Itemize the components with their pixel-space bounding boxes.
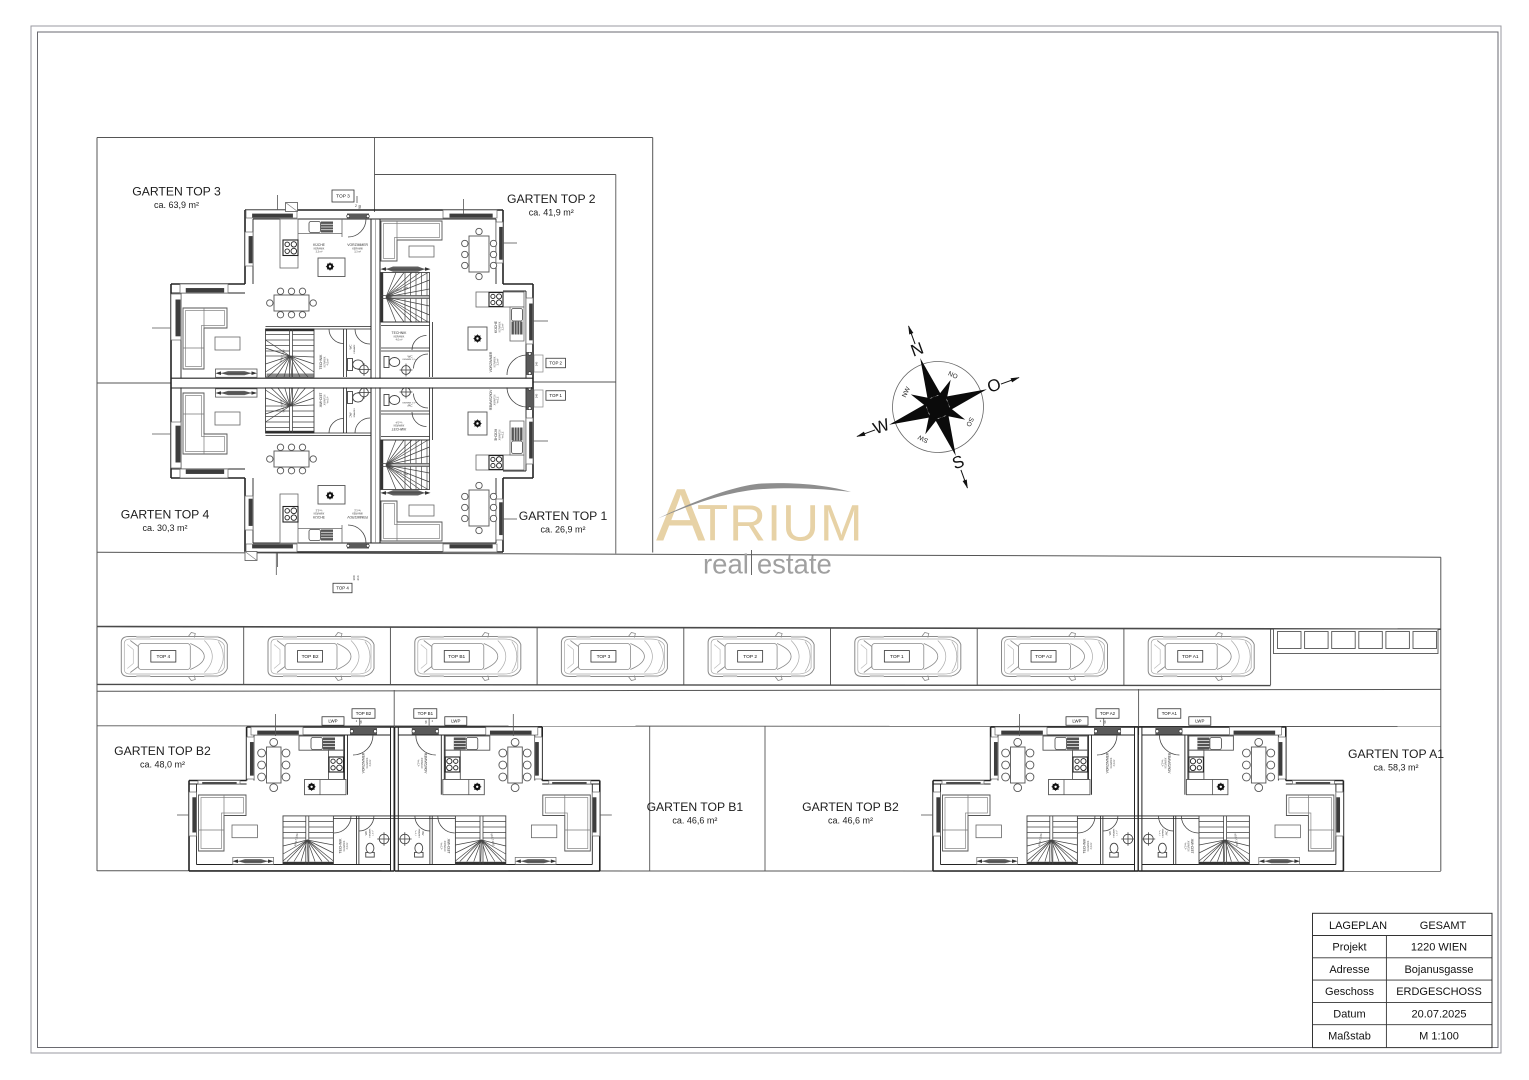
svg-text:4,0 m²: 4,0 m²: [327, 397, 330, 404]
svg-text:4,0 m²: 4,0 m²: [396, 339, 403, 342]
svg-text:ca. 46,6 m²: ca. 46,6 m²: [672, 816, 717, 826]
svg-text:TECHNIK: TECHNIK: [319, 354, 323, 370]
svg-text:3,2 m²: 3,2 m²: [502, 323, 505, 330]
svg-text:WC: WC: [364, 831, 368, 836]
svg-text:Adresse: Adresse: [1329, 964, 1369, 976]
svg-text:ca. 58,3 m²: ca. 58,3 m²: [1373, 763, 1418, 773]
svg-text:LWP: LWP: [328, 719, 337, 724]
svg-text:240: 240: [535, 361, 539, 366]
svg-text:TOP A1: TOP A1: [1182, 654, 1199, 660]
svg-text:3,2 m²: 3,2 m²: [502, 432, 505, 439]
svg-text:TECHNIK: TECHNIK: [392, 427, 408, 431]
svg-text:VORZIMMER: VORZIMMER: [423, 752, 427, 773]
svg-text:TOP A2: TOP A2: [1035, 654, 1052, 660]
svg-text:GARTEN TOP 4: GARTEN TOP 4: [121, 508, 210, 522]
svg-text:VORZIMMER: VORZIMMER: [362, 752, 366, 773]
svg-text:LAGEPLAN: LAGEPLAN: [1329, 920, 1387, 932]
svg-text:TOP A2: TOP A2: [1100, 711, 1116, 716]
svg-text:WC: WC: [1108, 831, 1112, 836]
svg-text:ca. 41,9 m²: ca. 41,9 m²: [529, 208, 574, 218]
svg-text:KÜCHE: KÜCHE: [494, 429, 498, 442]
svg-text:KÜCHE: KÜCHE: [313, 515, 326, 519]
svg-text:VORZIMMER: VORZIMMER: [489, 390, 493, 411]
svg-text:WC: WC: [408, 404, 414, 408]
svg-text:TECHNIK: TECHNIK: [319, 393, 323, 409]
svg-text:1,6 m²: 1,6 m²: [372, 830, 375, 836]
svg-text:4,2 m²: 4,2 m²: [1183, 842, 1186, 849]
svg-text:GARTEN TOP B2: GARTEN TOP B2: [802, 800, 899, 814]
svg-text:ca. 30,3 m²: ca. 30,3 m²: [142, 523, 187, 533]
svg-text:1,6 m²: 1,6 m²: [1158, 830, 1161, 836]
svg-text:TOP B1: TOP B1: [418, 711, 434, 716]
svg-text:TOP 2: TOP 2: [743, 654, 757, 660]
svg-text:TOP 4: TOP 4: [156, 654, 170, 660]
svg-text:VORZIMMER: VORZIMMER: [489, 351, 493, 372]
svg-text:LWP: LWP: [1072, 719, 1081, 724]
svg-text:WC: WC: [349, 344, 353, 350]
svg-text:TOP 3: TOP 3: [597, 654, 611, 660]
svg-text:LWP: LWP: [1195, 719, 1204, 724]
svg-text:VORZIMMER: VORZIMMER: [1106, 752, 1110, 773]
svg-text:ERDGESCHOSS: ERDGESCHOSS: [1396, 986, 1482, 998]
svg-text:ca. 26,9 m²: ca. 26,9 m²: [540, 525, 585, 535]
svg-text:KERAMIK: KERAMIK: [368, 828, 371, 838]
svg-text:20.07.2025: 20.07.2025: [1411, 1008, 1466, 1020]
svg-text:WC: WC: [421, 831, 425, 836]
svg-text:240: 240: [535, 393, 539, 398]
svg-text:KÜCHE: KÜCHE: [494, 320, 498, 333]
svg-text:3,3 m²: 3,3 m²: [354, 508, 361, 511]
svg-text:TECHNIK: TECHNIK: [339, 838, 343, 854]
svg-text:TECHNIK: TECHNIK: [1083, 838, 1087, 854]
svg-text:4,0 m²: 4,0 m²: [327, 358, 330, 365]
svg-text:WC: WC: [1164, 831, 1168, 836]
svg-text:Bojanusgasse: Bojanusgasse: [1404, 964, 1473, 976]
svg-text:TRIUM: TRIUM: [697, 495, 863, 552]
svg-text:4,2 m²: 4,2 m²: [417, 759, 420, 766]
svg-text:4,2 m²: 4,2 m²: [1113, 759, 1116, 766]
svg-text:TOP A1: TOP A1: [1162, 711, 1178, 716]
svg-text:WC: WC: [408, 355, 414, 359]
svg-text:1,6 m²: 1,6 m²: [414, 830, 417, 836]
svg-text:M 1:100: M 1:100: [1419, 1031, 1459, 1043]
svg-text:GARTEN TOP B2: GARTEN TOP B2: [114, 744, 211, 758]
svg-text:ca. 48,0 m²: ca. 48,0 m²: [140, 760, 185, 770]
svg-text:TOP 1: TOP 1: [549, 393, 562, 398]
svg-text:TOP B2: TOP B2: [302, 654, 319, 660]
svg-text:4,0 m²: 4,0 m²: [396, 420, 403, 423]
svg-text:TECHNIK: TECHNIK: [392, 331, 408, 335]
svg-text:3,2 m²: 3,2 m²: [497, 358, 500, 365]
svg-text:4,2 m²: 4,2 m²: [369, 759, 372, 766]
svg-text:4,2 m²: 4,2 m²: [440, 842, 443, 849]
svg-text:Projekt: Projekt: [1332, 942, 1366, 954]
svg-text:1220 WIEN: 1220 WIEN: [1411, 942, 1467, 954]
svg-text:3,2 m²: 3,2 m²: [497, 397, 500, 404]
svg-text:3,3 m²: 3,3 m²: [316, 251, 323, 254]
svg-text:LWP: LWP: [451, 719, 460, 724]
svg-text:ca. 63,9 m²: ca. 63,9 m²: [154, 200, 199, 210]
svg-text:TECHNIK: TECHNIK: [1190, 838, 1194, 854]
svg-text:Maßstab: Maßstab: [1328, 1031, 1371, 1043]
svg-text:TOP 4: TOP 4: [336, 586, 349, 591]
svg-text:2: 2: [355, 204, 357, 208]
svg-text:KERAMIK: KERAMIK: [417, 828, 420, 838]
svg-text:GARTEN TOP 1: GARTEN TOP 1: [519, 509, 608, 523]
svg-text:KERAMIK: KERAMIK: [1161, 828, 1164, 838]
svg-text:GESAMT: GESAMT: [1420, 920, 1467, 932]
svg-text:98: 98: [358, 205, 362, 209]
svg-text:KERAMIK: KERAMIK: [353, 408, 356, 418]
svg-text:3,3 m²: 3,3 m²: [316, 508, 323, 511]
svg-text:4,2 m²: 4,2 m²: [346, 842, 349, 849]
svg-text:GARTEN TOP 3: GARTEN TOP 3: [132, 185, 221, 199]
svg-text:GARTEN TOP A1: GARTEN TOP A1: [1348, 747, 1444, 761]
svg-text:TOP B1: TOP B1: [448, 654, 465, 660]
svg-text:TOP 1: TOP 1: [890, 654, 904, 660]
svg-text:GARTEN TOP 2: GARTEN TOP 2: [507, 192, 596, 206]
svg-text:realestate: realestate: [703, 549, 832, 580]
svg-text:TOP 3: TOP 3: [336, 194, 350, 200]
svg-text:VORZIMMER: VORZIMMER: [347, 515, 368, 519]
svg-text:KERAMIK: KERAMIK: [353, 344, 356, 354]
svg-text:TOP B2: TOP B2: [356, 711, 372, 716]
svg-text:TECHNIK: TECHNIK: [446, 838, 450, 854]
svg-text:4,2 m²: 4,2 m²: [1160, 759, 1163, 766]
svg-text:KERAMIK: KERAMIK: [1112, 828, 1115, 838]
svg-text:Geschoss: Geschoss: [1325, 986, 1374, 998]
svg-text:GARTEN TOP B1: GARTEN TOP B1: [647, 800, 744, 814]
svg-text:Datum: Datum: [1333, 1008, 1365, 1020]
svg-text:WC: WC: [349, 413, 353, 419]
svg-text:VORZIMMER: VORZIMMER: [347, 243, 368, 247]
svg-text:TOP 2: TOP 2: [549, 361, 562, 366]
svg-text:KÜCHE: KÜCHE: [313, 243, 326, 247]
svg-text:VORZIMMER: VORZIMMER: [1167, 752, 1171, 773]
svg-text:4,2 m²: 4,2 m²: [1090, 842, 1093, 849]
svg-text:214: 214: [356, 575, 360, 580]
svg-text:ca. 46,6 m²: ca. 46,6 m²: [828, 816, 873, 826]
svg-text:1,6 m²: 1,6 m²: [1116, 830, 1119, 836]
svg-text:3,3 m²: 3,3 m²: [354, 251, 361, 254]
